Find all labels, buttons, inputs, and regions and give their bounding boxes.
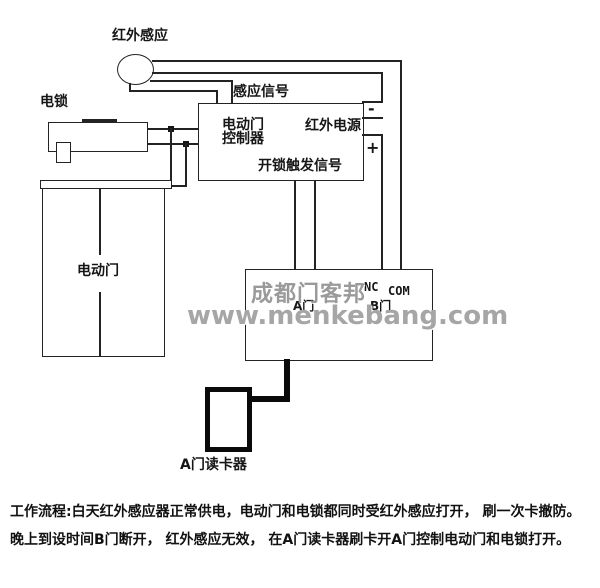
minus-sign: - — [368, 101, 375, 117]
wiring-diagram: 红外感应 电锁 感应信号 电动门 控制器 红外电源 开锁触发信号 - + 电动门 — [0, 0, 600, 588]
wire-lock-2-elbow — [171, 185, 187, 187]
wire-reader-vertical — [284, 359, 290, 400]
com-terminal-label: COM — [388, 285, 410, 298]
card-reader-label: A门读卡器 — [180, 458, 247, 473]
plus-sign: + — [366, 140, 379, 156]
sensor-signal-label: 感应信号 — [233, 85, 289, 100]
door-divider-upper — [99, 189, 101, 255]
wire-trigger-1 — [294, 180, 296, 270]
infrared-power-label: 红外电源 — [305, 119, 361, 134]
wire-signal-b-vertical — [216, 90, 218, 104]
workflow-text-line1: 工作流程:白天红外感应器正常供电，电动门和电锁都同时受红外感应打开， 刷一次卡撤… — [10, 501, 580, 521]
workflow-text-line2: 晚上到设时间B门断开， 红外感应无效， 在A门读卡器刷卡开A门控制电动门和电锁打… — [10, 529, 570, 549]
electric-lock-bolt — [56, 142, 71, 163]
electric-door-label: 电动门 — [77, 264, 119, 279]
electric-lock-notch — [82, 119, 117, 122]
wire-reader-horizontal — [246, 396, 290, 402]
wire-sensor-minus-vertical — [381, 72, 383, 103]
electric-lock-label: 电锁 — [40, 95, 68, 110]
wire-plus-to-nc — [381, 134, 383, 270]
infrared-sensor-shape — [117, 54, 154, 85]
wire-lock-2-vertical — [185, 143, 187, 187]
plus-tab-top — [362, 134, 383, 136]
controller-label-line2: 控制器 — [222, 132, 264, 147]
wire-signal-a-horizontal — [150, 80, 233, 82]
wire-trigger-2 — [314, 180, 316, 270]
wire-sensor-com-horizontal — [152, 60, 402, 62]
door-divider-lower — [99, 292, 101, 356]
wire-lock-2-horizontal — [148, 143, 199, 145]
nc-terminal-label: NC — [364, 281, 378, 294]
card-reader-shape — [205, 387, 252, 452]
watermark-url: www.menkebang.com — [187, 301, 508, 331]
wire-signal-b-horizontal — [129, 90, 218, 92]
infrared-sensor-label: 红外感应 — [112, 29, 168, 44]
wire-sensor-com-vertical — [400, 60, 402, 270]
wire-sensor-minus-horizontal — [152, 72, 383, 74]
wire-signal-a-vertical — [231, 80, 233, 104]
unlock-trigger-label: 开锁触发信号 — [258, 159, 342, 174]
wire-lock-1-vertical — [170, 128, 172, 182]
